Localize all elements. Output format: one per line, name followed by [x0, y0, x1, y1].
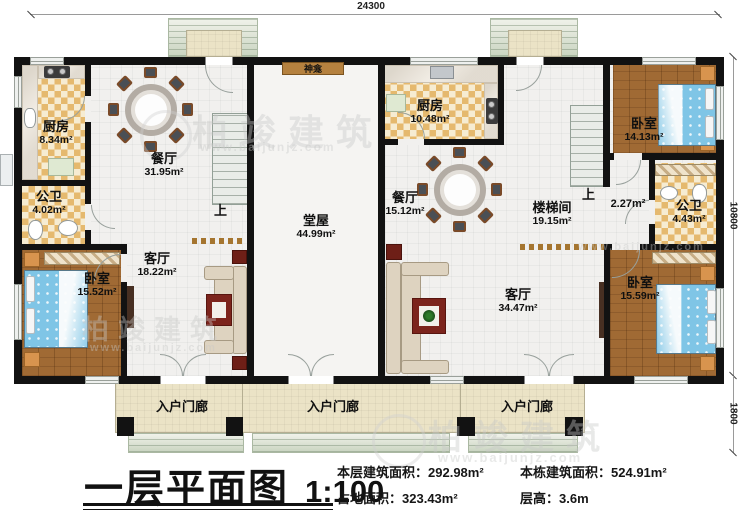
nightstand: [700, 356, 715, 371]
stairs-up-label: 上: [214, 200, 227, 219]
nightstand: [700, 266, 715, 281]
dining-table-left: [125, 84, 177, 136]
room-label-kitchen-left: 厨房 8.34m²: [24, 120, 88, 146]
room-label-dining-left: 餐厅 31.95m²: [124, 152, 204, 178]
chair: [453, 147, 466, 158]
window: [716, 288, 724, 348]
room-label-bath-right: 公卫 4.43m²: [654, 199, 724, 225]
chair: [144, 67, 157, 78]
dimension-porch-depth: 1800: [728, 397, 739, 431]
door-gap: [614, 153, 642, 160]
kitchen-sink-icon: [430, 66, 454, 79]
side-table: [232, 250, 247, 264]
stat-floor-area: 本层建筑面积：292.98m²: [337, 462, 484, 481]
french-door-opening: [524, 376, 574, 384]
room-label-kitchen-right: 厨房 10.48m²: [390, 99, 470, 125]
porch-column: [226, 417, 243, 436]
stove-icon: [486, 98, 498, 124]
exterior-wall-top: [14, 57, 724, 65]
room-label-living-left: 客厅 18.22m²: [117, 252, 197, 278]
window: [430, 376, 464, 384]
side-table: [386, 244, 402, 260]
burner: [488, 113, 495, 120]
room-label-living-right: 客厅 34.47m²: [478, 288, 558, 314]
pillow: [705, 88, 714, 110]
french-door-opening: [288, 376, 334, 384]
chair: [108, 103, 119, 116]
stove-icon: [44, 66, 70, 78]
entry-door-opening: [205, 57, 233, 65]
pillow: [26, 276, 35, 302]
porch-label-left: 入户门廊: [137, 396, 227, 415]
window: [85, 376, 119, 384]
window: [634, 376, 688, 384]
fridge: [48, 158, 74, 176]
room-label-stairwell: 楼梯间 19.15m²: [507, 201, 597, 227]
shrine-niche: 神龛: [282, 62, 344, 75]
nightstand: [24, 252, 40, 267]
door-gap: [398, 139, 424, 145]
french-door-opening: [160, 376, 206, 384]
wall-kitchen-right-side: [498, 57, 504, 145]
sofa-right-arm: [401, 262, 449, 276]
coffee-table-left: [206, 294, 232, 326]
dimension-top-width: 24300: [341, 1, 401, 12]
porch-steps-middle: [252, 433, 450, 453]
porch-column: [117, 417, 134, 436]
hall-wall-left: [247, 57, 254, 384]
stairs-left: [212, 113, 248, 205]
title-underline-thin: [83, 509, 333, 510]
chair: [453, 221, 466, 232]
wall-kitchen-left-bottom: [14, 180, 91, 186]
sofa-right-back: [386, 262, 401, 374]
dimension-line-top: [30, 14, 720, 15]
window: [30, 57, 64, 65]
sofa-left-back: [232, 266, 247, 354]
shrine-label: 神龛: [304, 62, 322, 75]
rear-porch-right-inner: [508, 30, 562, 57]
dimension-right-height: 10800: [728, 194, 739, 238]
wall-bedroom-br-left: [604, 250, 610, 384]
room-label-hall: 堂屋 44.99m²: [276, 214, 356, 240]
door-gap: [85, 96, 91, 122]
sofa-left-arm: [204, 340, 234, 354]
room-label-corridor: 2.27m²: [598, 198, 658, 210]
pillow: [26, 308, 35, 334]
window: [14, 76, 22, 108]
porch-steps-left: [128, 433, 244, 453]
pillow: [705, 116, 714, 138]
nightstand: [700, 66, 715, 81]
room-label-dining-right: 餐厅 15.12m²: [365, 191, 445, 217]
porch-column: [457, 417, 475, 436]
sink-icon: [58, 220, 78, 236]
stairs-up-label: 上: [582, 184, 595, 203]
exterior-pilaster: [0, 154, 13, 186]
entry-door-opening: [516, 57, 544, 65]
stat-building-area: 本栋建筑面积：524.91m²: [520, 462, 667, 481]
title-underline-thick: [83, 503, 333, 506]
floor-plan-canvas: 神龛 柏竣建筑 www.baijunjz.com 柏竣建筑 www.baijun…: [0, 0, 750, 521]
burner: [488, 101, 495, 108]
sofa-left-arm: [204, 266, 234, 280]
stat-storey-height: 层高：3.6m: [520, 488, 589, 507]
chair: [491, 183, 502, 196]
hall-wall-right: [378, 57, 385, 384]
coffee-table-top: [212, 302, 226, 319]
porch-label-right: 入户门廊: [482, 396, 572, 415]
window: [642, 57, 696, 65]
stat-footprint-area: 占地面积：323.43m²: [337, 488, 458, 507]
pillow: [707, 290, 716, 314]
threshold-dashed-right: [520, 244, 608, 250]
wall-bath-left-bottom: [14, 244, 127, 250]
window: [14, 284, 22, 340]
stairs-right: [570, 105, 604, 187]
rear-porch-left-inner: [186, 30, 242, 57]
porch-label-middle: 入户门廊: [288, 396, 378, 415]
toilet-icon: [28, 220, 43, 240]
sofa-right-arm: [401, 360, 449, 374]
shower-area: [655, 164, 716, 176]
burner: [59, 68, 66, 75]
threshold-dashed-left: [192, 238, 246, 244]
side-table: [232, 356, 247, 370]
burner: [47, 68, 54, 75]
pillow: [707, 320, 716, 344]
porch-column: [565, 417, 583, 436]
room-label-bedroom-topright: 卧室 14.13m²: [604, 117, 684, 143]
door-gap: [85, 204, 91, 230]
plant: [423, 310, 435, 322]
window: [410, 57, 478, 65]
room-label-bedroom-bottomright: 卧室 15.59m²: [600, 276, 680, 302]
wardrobe: [652, 252, 716, 264]
window: [716, 86, 724, 140]
porch-steps-right: [468, 433, 578, 453]
chair: [182, 103, 193, 116]
room-label-bath-left: 公卫 4.02m²: [18, 190, 80, 216]
nightstand: [24, 352, 40, 367]
